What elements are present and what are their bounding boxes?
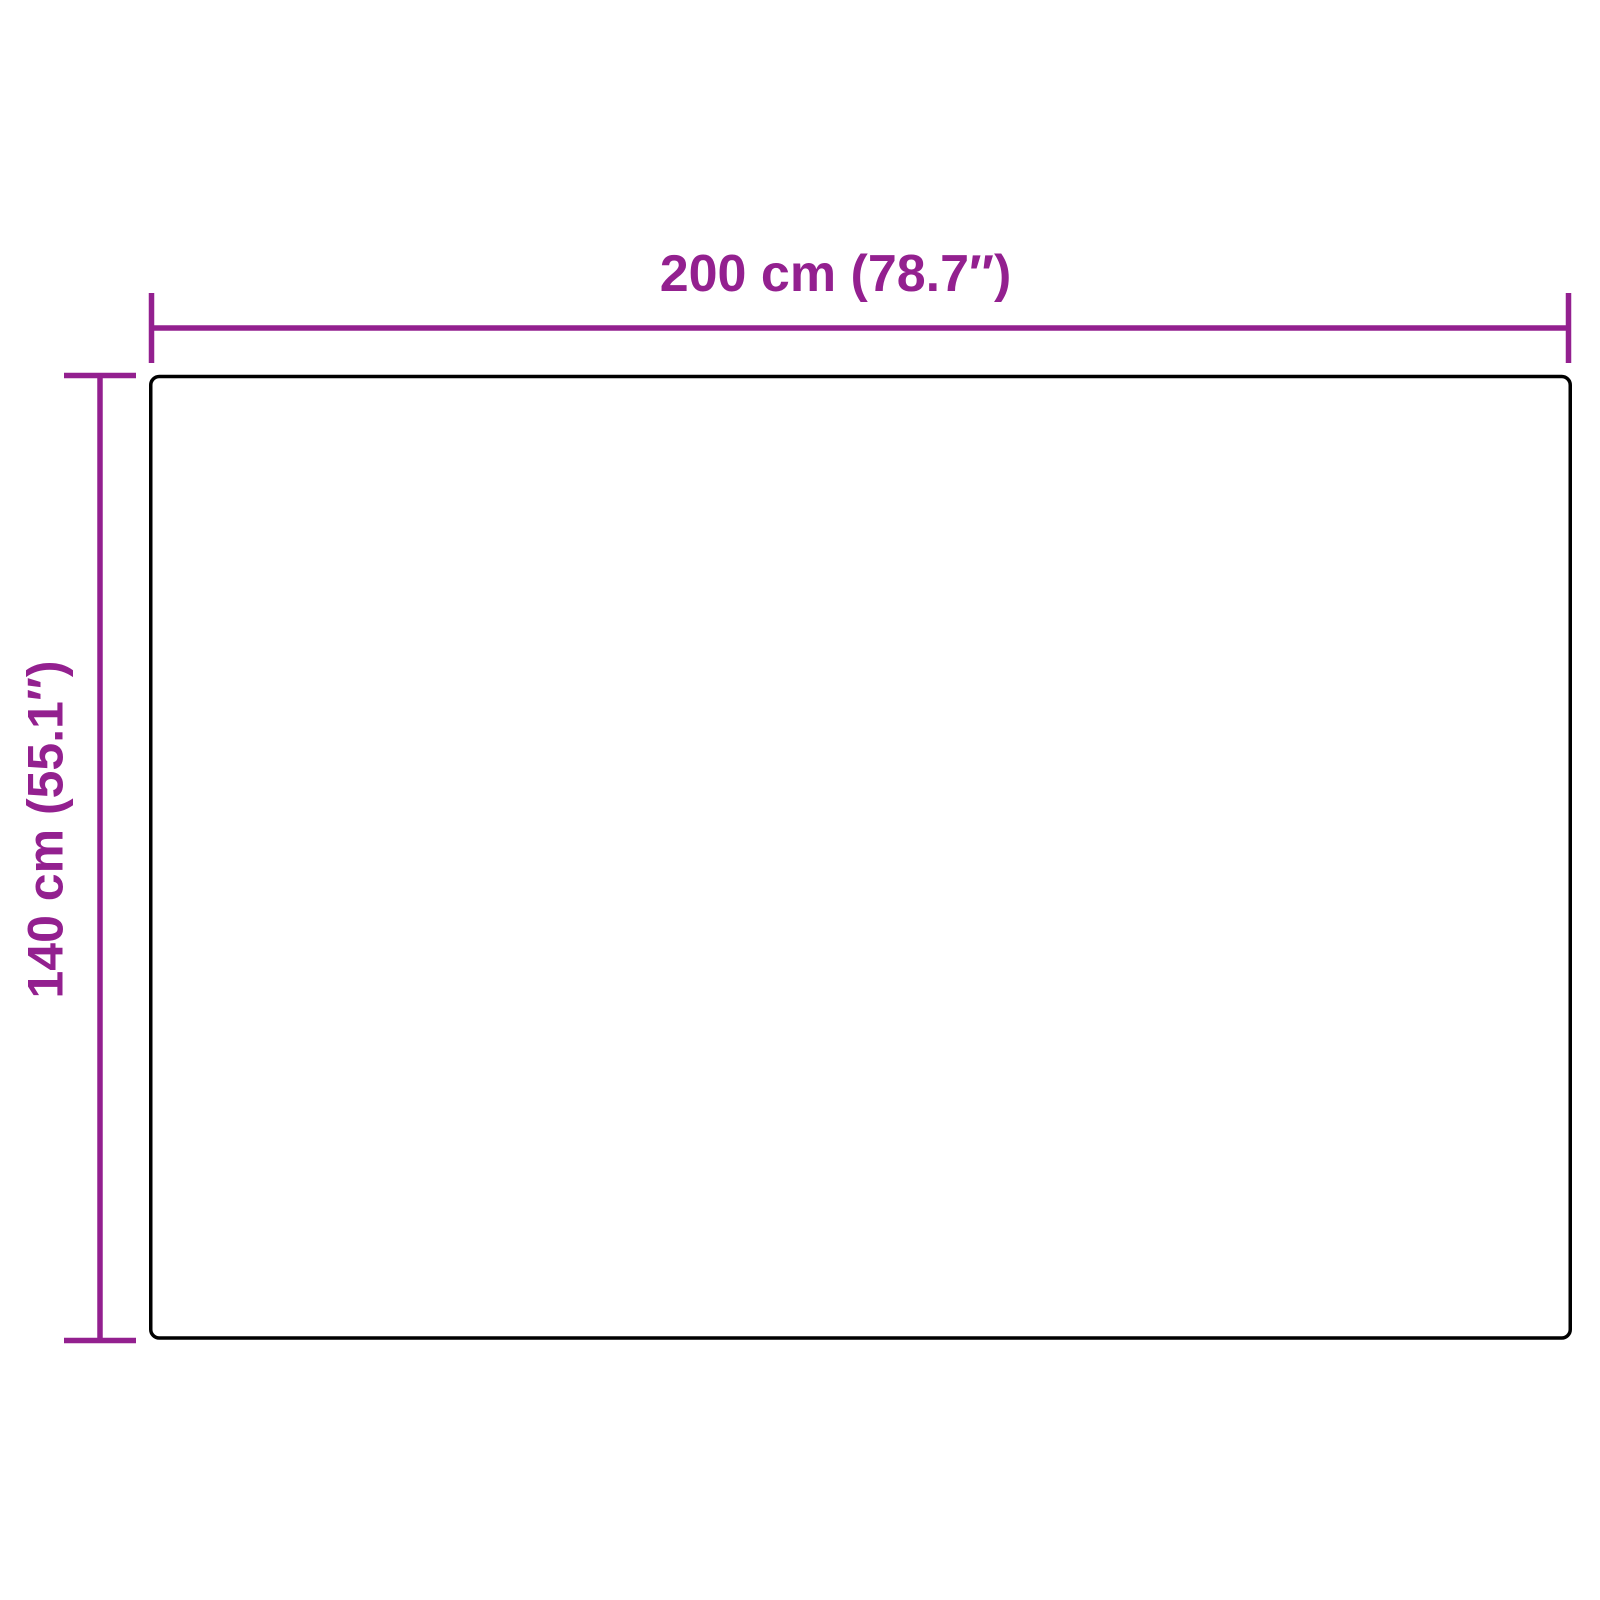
svg-text:140 cm (55.1″): 140 cm (55.1″)	[18, 660, 74, 998]
svg-text:200 cm (78.7″): 200 cm (78.7″)	[660, 245, 1012, 303]
